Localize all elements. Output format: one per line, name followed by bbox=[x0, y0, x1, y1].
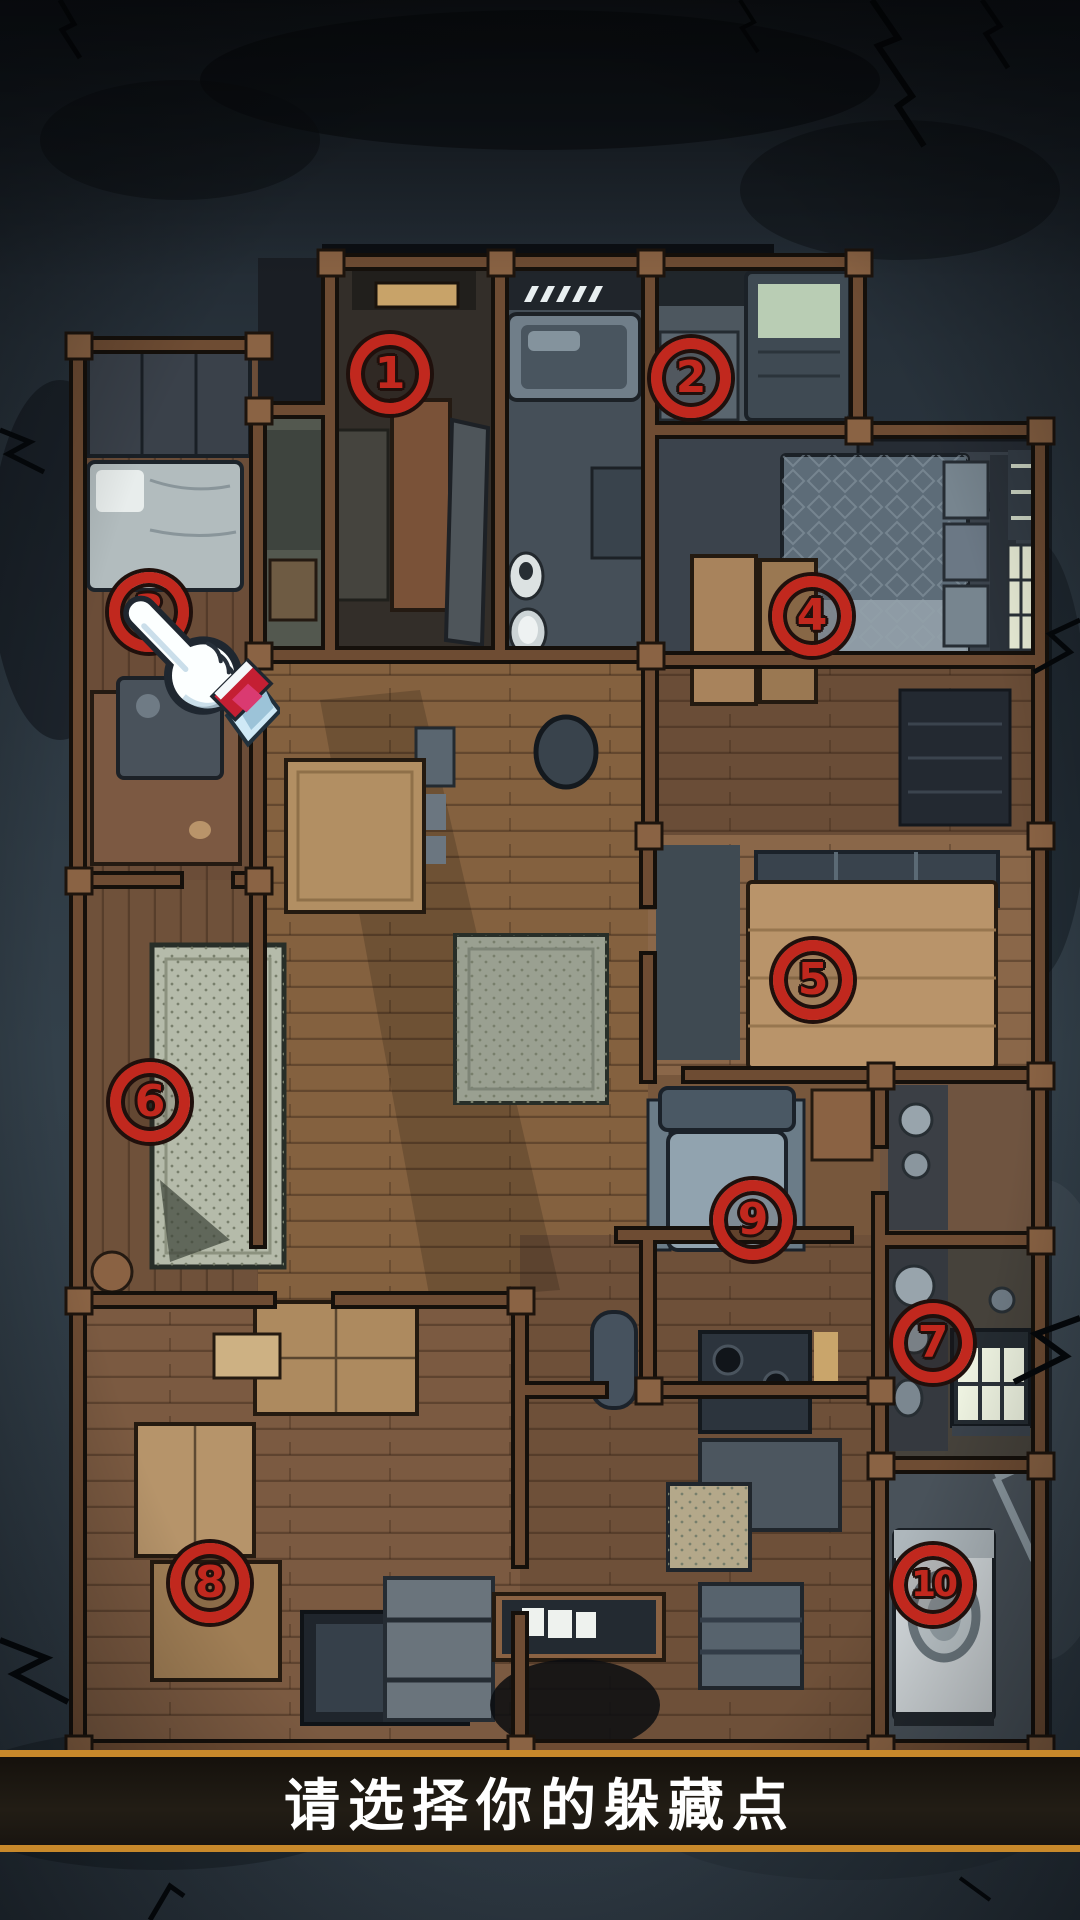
marker-number: 5 bbox=[798, 958, 829, 1002]
marker-number: 7 bbox=[918, 1321, 949, 1365]
hiding-spot-marker-8[interactable]: 8 bbox=[170, 1543, 250, 1623]
hiding-spot-marker-10[interactable]: 10 bbox=[893, 1545, 973, 1625]
hiding-spot-marker-2[interactable]: 2 bbox=[651, 338, 731, 418]
hiding-spot-marker-3[interactable]: 3 bbox=[109, 572, 189, 652]
marker-number: 4 bbox=[797, 594, 828, 638]
hiding-spot-marker-1[interactable]: 1 bbox=[350, 334, 430, 414]
hiding-spot-marker-9[interactable]: 9 bbox=[713, 1180, 793, 1260]
marker-number: 1 bbox=[375, 352, 406, 396]
marker-number: 8 bbox=[195, 1561, 226, 1605]
marker-number: 2 bbox=[676, 356, 707, 400]
hiding-spot-marker-5[interactable]: 5 bbox=[773, 940, 853, 1020]
marker-number: 10 bbox=[911, 1567, 955, 1603]
hiding-spot-markers: 1 2 3 4 5 6 7 8 9 10 bbox=[0, 0, 1080, 1920]
prompt-bar: 请选择你的躲藏点 bbox=[0, 1750, 1080, 1852]
marker-number: 3 bbox=[134, 590, 165, 634]
hiding-spot-marker-4[interactable]: 4 bbox=[772, 576, 852, 656]
marker-number: 6 bbox=[135, 1080, 166, 1124]
hiding-spot-marker-7[interactable]: 7 bbox=[893, 1303, 973, 1383]
marker-number: 9 bbox=[738, 1198, 769, 1242]
prompt-text: 请选择你的躲藏点 bbox=[284, 1761, 796, 1842]
game-screen: 1 2 3 4 5 6 7 8 9 10 bbox=[0, 0, 1080, 1920]
hiding-spot-marker-6[interactable]: 6 bbox=[110, 1062, 190, 1142]
